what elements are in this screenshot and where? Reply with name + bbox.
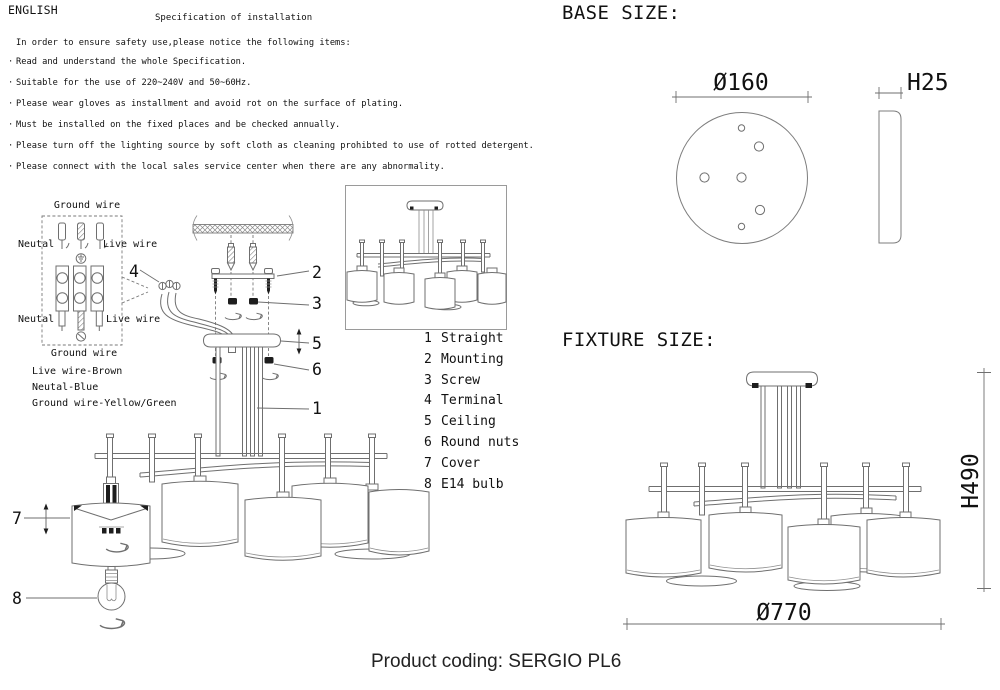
terminal-item: [159, 280, 234, 339]
base-size-drawing: Ø160 H25: [672, 70, 949, 244]
terminal-block: [56, 266, 104, 311]
legend-ground: Ground wire-Yellow/Green: [32, 398, 177, 409]
neutral-top-label: Neutal: [18, 239, 54, 250]
fixture-arms: [649, 463, 921, 519]
supply-wires: [59, 223, 108, 249]
shade: [245, 492, 321, 560]
bulb-item: [98, 567, 125, 629]
fixture-height-label: H490: [958, 453, 984, 508]
fixture-diameter-label: Ø770: [756, 600, 811, 626]
fixture-shades: [626, 507, 940, 591]
callout-3: 3: [312, 294, 322, 313]
base-plate-side-view: [879, 111, 901, 243]
neutral-bottom-label: Neutal: [18, 314, 54, 325]
base-plate-top-view: [677, 113, 808, 244]
ground-wire-top-label: Ground wire: [54, 200, 120, 211]
product-thumbnail: [346, 186, 507, 330]
shade: [867, 512, 940, 577]
thumb-shades: [347, 266, 506, 310]
callout-7: 7: [12, 509, 22, 528]
callout-4: 4: [129, 262, 139, 281]
shade: [709, 507, 782, 572]
mounting-bar: [212, 269, 275, 295]
legend-live: Live wire-Brown: [32, 366, 122, 377]
wall-anchors: [228, 244, 257, 271]
ground-symbol-top: [76, 254, 86, 264]
fixture-wires: [59, 311, 102, 341]
base-height-dimension: [875, 87, 903, 99]
updown-arrow: [44, 504, 49, 535]
base-diameter-label: Ø160: [713, 70, 768, 96]
wiring-diagram: Ground wire: [18, 200, 177, 409]
shade: [162, 476, 238, 547]
lamp-shades: [115, 476, 429, 560]
shade: [366, 484, 429, 555]
shade: [626, 512, 701, 577]
fixture-rods: [761, 386, 801, 488]
updown-arrow: [297, 329, 302, 355]
ceiling-section: [193, 216, 293, 241]
callout-6: 6: [312, 360, 322, 379]
legend-neutral: Neutal-Blue: [32, 382, 98, 393]
anchor-guides: [231, 235, 253, 297]
fixture-size-drawing: H490 Ø770: [623, 368, 991, 630]
live-top-label: Live wire: [103, 239, 157, 250]
screw-nuts: [225, 298, 262, 320]
callout-8: 8: [12, 589, 22, 608]
callout-5: 5: [312, 334, 322, 353]
spec-sheet-page: ENGLISH Specification of installation In…: [0, 0, 1000, 690]
cover-item: [72, 503, 150, 567]
callout-2: 2: [312, 263, 322, 282]
technical-drawing: Ground wire: [0, 0, 1000, 690]
ground-wire-bottom-label: Ground wire: [51, 348, 117, 359]
live-bottom-label: Live wire: [106, 314, 160, 325]
callout-1: 1: [312, 399, 322, 418]
straight-rods: [216, 347, 263, 456]
shade: [788, 519, 860, 584]
base-height-label: H25: [907, 70, 949, 96]
